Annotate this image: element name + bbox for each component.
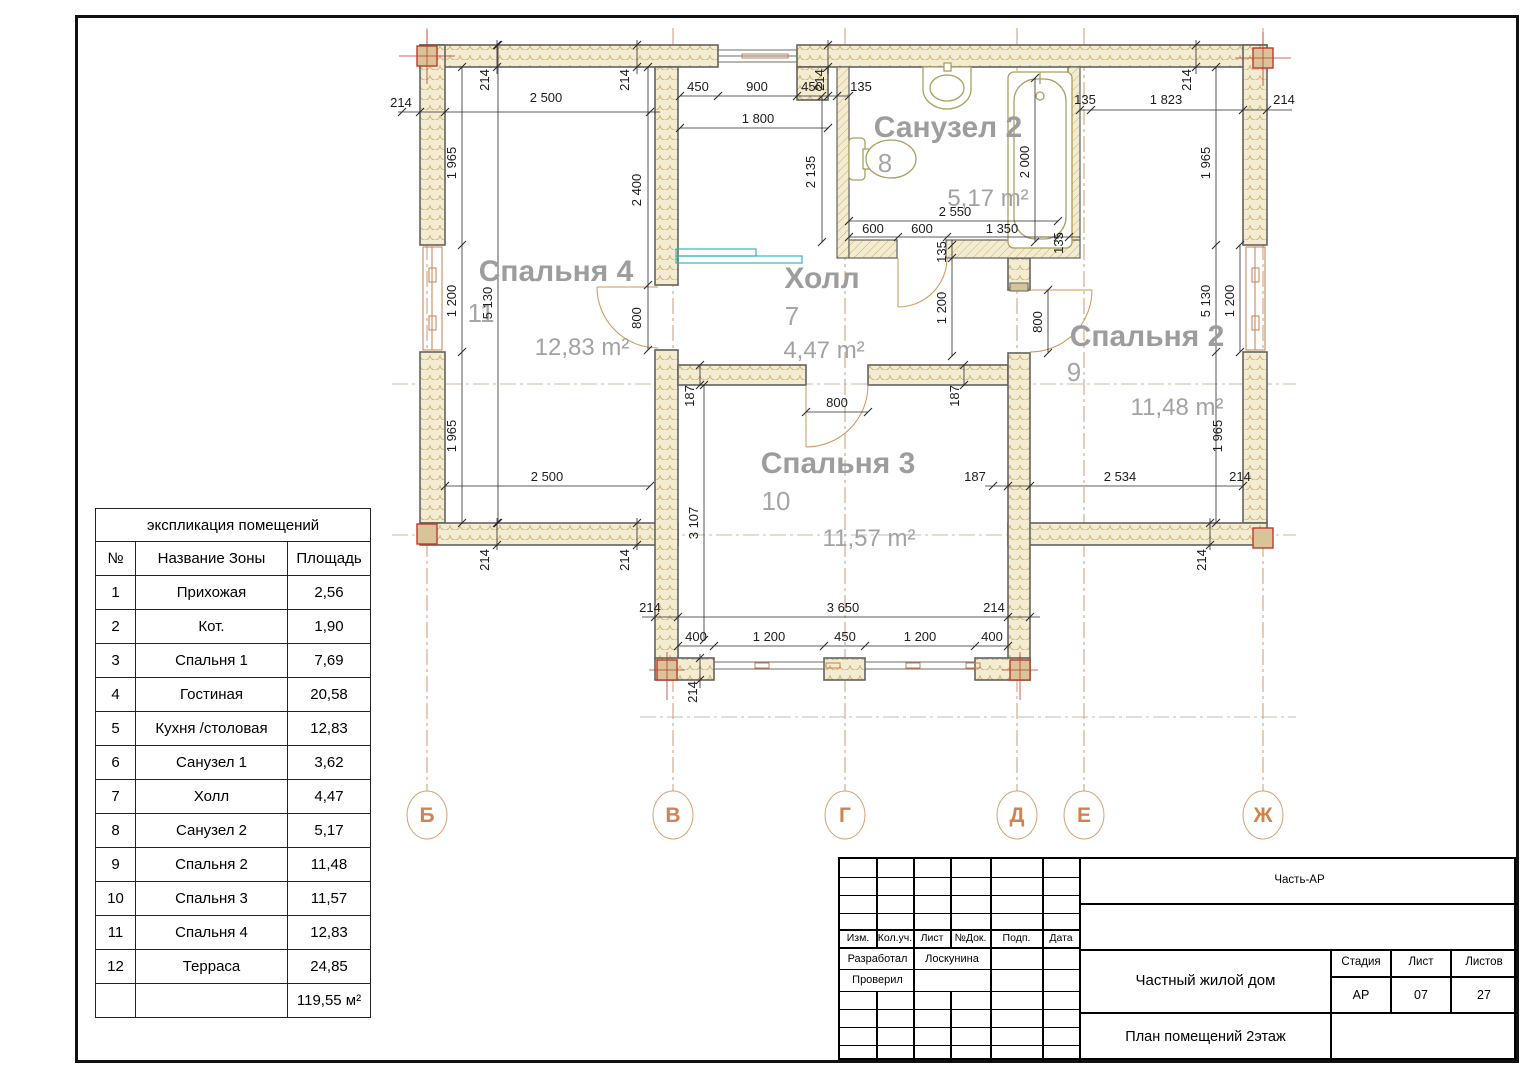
dimension-label: 135 <box>1051 232 1066 254</box>
dimension-label: 214 <box>685 681 700 703</box>
tb-sheets-value: 27 <box>1452 978 1516 1012</box>
room-area: 12,83 m² <box>535 334 630 361</box>
dimension-label: 450 <box>834 629 856 644</box>
title-block: Изм. Кол.уч. Лист №Док. Подп. Дата Разра… <box>838 857 1516 1060</box>
axis-bubbles: БВГДЕЖ <box>407 791 1283 839</box>
dimension-label: 214 <box>1179 69 1194 91</box>
tb-stage-value: АР <box>1332 978 1390 1012</box>
table-row: 10Спальня 311,57 <box>96 882 371 916</box>
tb-drawing-name: План помещений 2этаж <box>1081 1014 1330 1060</box>
dimension-label: 135 <box>934 241 949 263</box>
tb-sheet-label: Лист <box>1392 949 1450 976</box>
dimension-label: 600 <box>862 221 884 236</box>
dimension-label: 900 <box>746 79 768 94</box>
dimension-label: 800 <box>629 307 644 329</box>
tb-sheet-value: 07 <box>1392 978 1450 1012</box>
tb-stage-label: Стадия <box>1332 949 1390 976</box>
dimension-label: 450 <box>687 79 709 94</box>
dimension-label: 214 <box>639 600 661 615</box>
dimension-label: 1 965 <box>1210 420 1225 453</box>
dimension-label: 214 <box>812 69 827 91</box>
dimension-label: 1 965 <box>444 420 459 453</box>
explication-header-1: Название Зоны <box>136 542 288 576</box>
room-number: 7 <box>785 301 799 331</box>
tb-sheets-label: Листов <box>1452 949 1516 976</box>
dimension-label: 135 <box>850 79 872 94</box>
dimension-label: 135 <box>1074 92 1096 107</box>
room-area: 11,57 m² <box>823 525 916 552</box>
tb-col-ndok: №Док. <box>951 930 990 947</box>
table-row: 12Терраса24,85 <box>96 950 371 984</box>
dimension-label: 3 650 <box>827 600 860 615</box>
stair-symbol <box>676 249 802 263</box>
axis-bubble-Е: Е <box>1077 804 1091 827</box>
table-row: 7Холл4,47 <box>96 780 371 814</box>
dimension-label: 1 800 <box>742 111 775 126</box>
dimension-label: 400 <box>981 629 1003 644</box>
dimension-label: 2 000 <box>1017 146 1032 179</box>
dimension-label: 2 400 <box>629 174 644 207</box>
dimension-label: 2 534 <box>1104 469 1137 484</box>
table-row: 6Санузел 13,62 <box>96 746 371 780</box>
dimension-label: 187 <box>947 385 962 407</box>
explication-header-2: Площадь <box>288 542 371 576</box>
axis-bubble-Ж: Ж <box>1253 804 1274 827</box>
dimension-label: 800 <box>1030 311 1045 333</box>
table-row: 5Кухня /столовая12,83 <box>96 712 371 746</box>
table-total-row: 119,55 м² <box>96 984 371 1018</box>
tb-col-izm: Изм. <box>840 930 876 947</box>
room-area: 4,47 m² <box>783 337 864 364</box>
table-row: 11Спальня 412,83 <box>96 916 371 950</box>
dimension-label: 214 <box>983 600 1005 615</box>
tb-col-podp: Подп. <box>991 930 1042 947</box>
drawing-sheet: { "sheet": { "axes": [ {"label":"Б","x":… <box>0 0 1528 1080</box>
room-name: Спальня 2 <box>1070 320 1225 353</box>
tb-col-koluch: Кол.уч. <box>877 930 913 947</box>
dimension-label: 1 200 <box>444 285 459 318</box>
table-row: 3Спальня 17,69 <box>96 644 371 678</box>
dimension-label: 1 200 <box>934 292 949 325</box>
table-row: 8Санузел 25,17 <box>96 814 371 848</box>
room-name: Холл <box>784 262 859 295</box>
axis-bubble-Д: Д <box>1010 804 1025 827</box>
dimension-label: 800 <box>826 395 848 410</box>
dimension-label: 187 <box>964 469 986 484</box>
dimension-label: 1 823 <box>1150 92 1183 107</box>
dimension-label: 3 107 <box>686 507 701 540</box>
dimension-label: 5 130 <box>1198 285 1213 318</box>
dimension-label: 5 130 <box>480 287 495 320</box>
sink-icon <box>923 63 971 109</box>
table-row: 4Гостиная20,58 <box>96 678 371 712</box>
dimension-label: 1 200 <box>904 629 937 644</box>
dimension-label: 214 <box>477 69 492 91</box>
dimension-label: 214 <box>617 549 632 571</box>
dimension-label: 600 <box>911 221 933 236</box>
dimension-label: 187 <box>682 385 697 407</box>
dimension-label: 1 350 <box>986 221 1019 236</box>
room-number: 10 <box>762 486 791 516</box>
table-row: 2Кот.1,90 <box>96 610 371 644</box>
axis-bubble-В: В <box>665 804 680 827</box>
dimension-label: 214 <box>1229 469 1251 484</box>
dimension-label: 1 965 <box>444 147 459 180</box>
room-name: Спальня 4 <box>479 255 634 288</box>
dimension-label: 1 965 <box>1198 147 1213 180</box>
dimension-label: 2 550 <box>939 204 972 219</box>
room-number: 9 <box>1067 357 1081 387</box>
tb-developed-label: Разработал <box>842 949 913 969</box>
axis-bubble-Г: Г <box>839 804 851 827</box>
dimension-label: 214 <box>477 549 492 571</box>
dimension-label: 1 200 <box>753 629 786 644</box>
dimension-label: 214 <box>1273 92 1295 107</box>
dimension-label: 2 500 <box>530 90 563 105</box>
tb-checked-label: Проверил <box>842 969 913 991</box>
tb-developed-value: Лоскунина <box>914 949 990 969</box>
dimension-label: 2 135 <box>803 156 818 189</box>
total-area-value: 119,55 м² <box>288 984 371 1018</box>
dimension-label: 2 500 <box>531 469 564 484</box>
tb-part: Часть-АР <box>1081 859 1518 903</box>
dimension-label: 214 <box>390 95 412 110</box>
table-row: 1Прихожая2,56 <box>96 576 371 610</box>
room-number: 8 <box>878 148 892 178</box>
tb-col-data: Дата <box>1043 930 1079 947</box>
explication-title: экспликация помещений <box>96 509 371 542</box>
axis-bubble-Б: Б <box>419 804 434 827</box>
dimension-label: 1 200 <box>1222 285 1237 318</box>
table-row: 9Спальня 211,48 <box>96 848 371 882</box>
room-explication-table: экспликация помещений №Название ЗоныПлощ… <box>95 508 370 1018</box>
dimension-label: 400 <box>685 629 707 644</box>
dimension-label: 214 <box>617 69 632 91</box>
room-name: Санузел 2 <box>874 111 1022 144</box>
tb-col-list: Лист <box>914 930 950 947</box>
dimension-label: 214 <box>1194 549 1209 571</box>
room-area: 11,48 m² <box>1131 394 1224 421</box>
tb-project-name: Частный жилой дом <box>1081 949 1330 1012</box>
room-name: Спальня 3 <box>761 447 916 480</box>
explication-header-0: № <box>96 542 136 576</box>
